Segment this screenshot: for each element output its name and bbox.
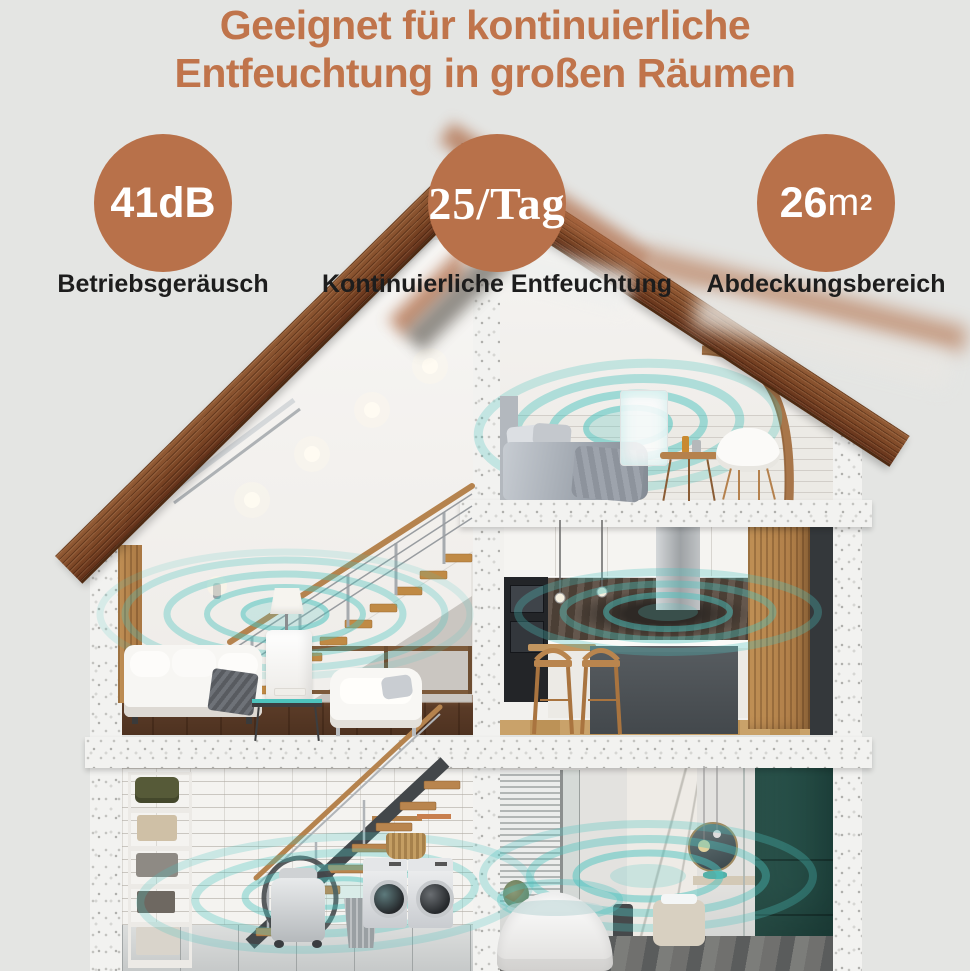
lamp-shade — [270, 588, 304, 614]
chair-leg — [758, 470, 760, 500]
washer-door — [416, 880, 454, 918]
bathtub — [497, 892, 613, 971]
stat-badge-coverage: 26m2 — [757, 134, 895, 272]
towel — [661, 894, 697, 904]
chair-shell — [716, 428, 780, 472]
ad-canvas: Geeignet für kontinuierliche Entfeuchtun… — [0, 0, 970, 971]
kitchen-island — [590, 646, 738, 734]
oven-column — [504, 577, 548, 702]
room-kitchen — [500, 520, 833, 735]
sofa-cushion — [130, 651, 170, 677]
table-apron — [252, 703, 322, 707]
cabinet-seam — [755, 859, 833, 861]
sofa — [124, 645, 262, 723]
gray-bin — [136, 853, 178, 877]
beige-box — [137, 815, 177, 841]
washer-display — [389, 862, 401, 866]
stat-coverage-value: 26 — [780, 179, 828, 228]
dark-box — [137, 891, 175, 913]
headline: Geeignet für kontinuierliche Entfeuchtun… — [0, 2, 970, 98]
dehumidifier-vent — [274, 688, 306, 696]
right-wall — [833, 405, 862, 971]
armchair-leg — [336, 728, 340, 736]
bedside-table — [660, 436, 718, 500]
shell-chair — [716, 428, 780, 498]
washer-door — [370, 880, 408, 918]
stat-label-coverage: Abdeckungsbereich — [707, 270, 946, 299]
stat-label-capacity: Kontinuierliche Entfeuchtung — [322, 270, 672, 299]
round-mirror — [688, 822, 738, 872]
stat-badge-noise: 41dB — [94, 134, 232, 272]
chair-leg — [722, 468, 732, 500]
olive-bag — [135, 777, 179, 803]
table-leg — [314, 707, 320, 741]
throw-blanket — [207, 668, 258, 716]
storage-shelf — [128, 772, 192, 968]
washer-display — [435, 862, 447, 866]
stat-capacity-value: 25/Tag — [428, 177, 565, 230]
stat-noise-value: 41dB — [110, 179, 215, 228]
dehumidifier-living — [266, 630, 312, 702]
shower-glass-line — [743, 768, 745, 953]
tub-water — [507, 900, 603, 916]
teal-side-table — [252, 699, 322, 743]
tall-wood-cabinet — [748, 526, 810, 729]
stat-coverage-unit: m — [827, 182, 859, 225]
table-leg — [662, 459, 671, 501]
table-leg — [254, 707, 260, 741]
island-wood-ledge — [528, 644, 596, 651]
wicker-basket — [386, 833, 426, 859]
wall-shelf-bar — [372, 816, 422, 821]
teal-sink — [703, 871, 727, 879]
stat-coverage-sup: 2 — [860, 190, 872, 216]
light-box — [136, 927, 180, 955]
table-leg — [706, 459, 715, 501]
bottle-amber — [682, 436, 689, 453]
armchair — [330, 668, 422, 736]
armchair-leg — [412, 728, 416, 736]
cabinet-seam2 — [755, 914, 833, 916]
headline-line2: Entfeuchtung in großen Räumen — [0, 50, 970, 98]
headline-line1: Geeignet für kontinuierliche — [0, 2, 970, 50]
oven-upper — [510, 585, 544, 613]
table-leg — [688, 459, 690, 501]
table-top-wood — [660, 452, 718, 459]
stat-label-noise: Betriebsgeräusch — [57, 270, 268, 299]
washing-machine-right — [408, 858, 453, 928]
stat-badge-capacity: 25/Tag — [428, 134, 566, 272]
armchair-pillow — [381, 674, 414, 700]
vacuum-body — [271, 878, 325, 942]
vacuum-wheel — [312, 940, 322, 948]
sofa-cushion — [172, 649, 216, 677]
kitchen-side-panel — [810, 526, 833, 735]
kitchen-upper-cabinets — [504, 527, 766, 579]
bedroom-floor-slab — [460, 500, 872, 527]
bath-ottoman — [653, 900, 705, 946]
wall-shelf-bar-copper — [417, 814, 451, 819]
washing-machine-left — [363, 858, 407, 928]
chair-leg — [766, 468, 776, 500]
vacuum-dehumidifier — [270, 868, 326, 950]
range-hood — [656, 522, 700, 610]
vacuum-wheel — [274, 940, 284, 948]
mid-floor-slab — [85, 737, 872, 768]
sofa-leg — [132, 717, 138, 724]
chair-leg — [738, 470, 740, 500]
